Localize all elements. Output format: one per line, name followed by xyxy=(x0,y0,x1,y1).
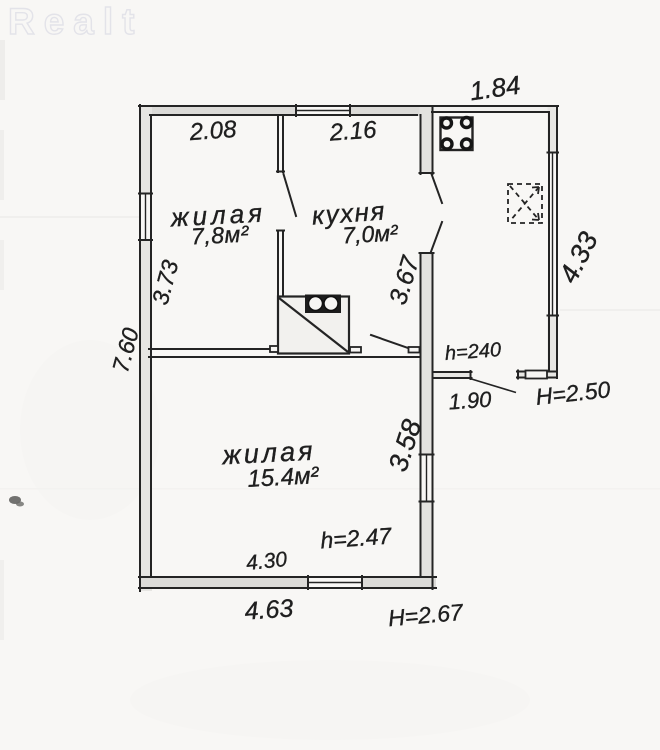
svg-text:4.30: 4.30 xyxy=(245,548,288,575)
svg-text:h=2.47: h=2.47 xyxy=(320,522,394,553)
svg-text:4.63: 4.63 xyxy=(244,594,295,625)
svg-text:15.4м²: 15.4м² xyxy=(247,462,320,493)
svg-text:1.90: 1.90 xyxy=(448,386,493,414)
svg-text:h=240: h=240 xyxy=(444,339,502,365)
svg-text:7,0м²: 7,0м² xyxy=(342,219,400,248)
svg-text:Realt: Realt xyxy=(8,1,143,42)
svg-text:2.08: 2.08 xyxy=(188,116,238,146)
svg-text:7,8м²: 7,8м² xyxy=(190,220,250,249)
svg-text:2.16: 2.16 xyxy=(328,116,378,146)
